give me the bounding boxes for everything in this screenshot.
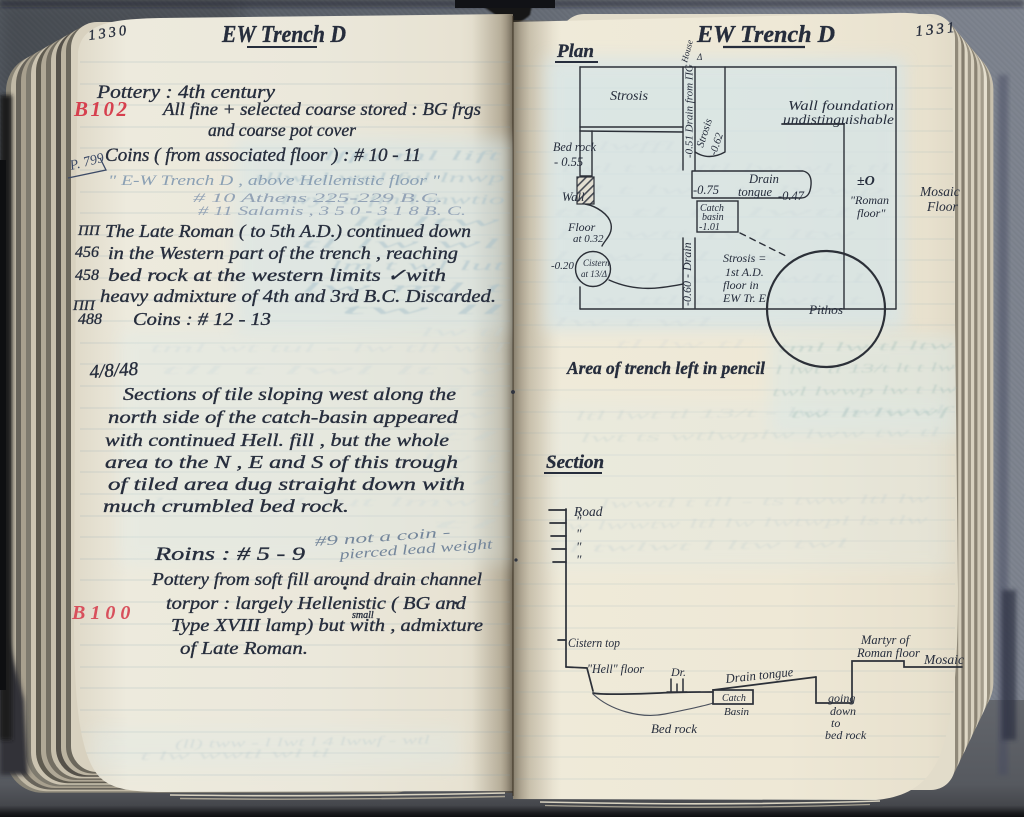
svg-text:floor": floor" (857, 206, 886, 220)
svg-text:488: 488 (78, 311, 102, 328)
svg-text:# 10 Athens 225-229 B.C.: # 10 Athens 225-229 B.C. (193, 191, 443, 205)
svg-text:Coins ( from associated floor: Coins ( from associated floor ) : # 10 -… (105, 146, 421, 166)
svg-text:-0.75: -0.75 (693, 183, 719, 197)
svg-text:tl lw tl: tl lw tl (615, 337, 747, 351)
svg-text:-1.01: -1.01 (699, 222, 720, 233)
svg-text:Coins : # 12 - 13: Coins : # 12 - 13 (133, 309, 271, 329)
svg-text:torpor : largely Hellenistic: torpor : largely Hellenistic ( BG and (166, 593, 466, 613)
svg-text:1st A.D.: 1st A.D. (725, 265, 764, 279)
svg-text:much crumbled bed rock.: much crumbled bed rock. (103, 496, 349, 516)
svg-text:of tiled area dug straight dow: of tiled area dug straight down with (108, 474, 465, 494)
svg-text:±O: ±O (857, 174, 875, 189)
svg-text:Cistern: Cistern (583, 258, 610, 268)
svg-text:Strosis: Strosis (610, 88, 648, 103)
svg-text:"Roman: "Roman (850, 193, 889, 207)
svg-text:B100: B100 (71, 602, 135, 624)
svg-text:Bed rock: Bed rock (553, 140, 596, 154)
svg-text:-0.51 Drain from ΠG: -0.51 Drain from ΠG (684, 64, 696, 158)
svg-text:The Late Roman ( to 5th A.D.): The Late Roman ( to 5th A.D.) continued … (105, 221, 471, 241)
svg-text:Floor: Floor (567, 220, 596, 234)
svg-text:EW Trench D: EW Trench D (221, 22, 346, 48)
svg-text:tongue: tongue (738, 185, 772, 199)
svg-text:ΠΠ: ΠΠ (77, 223, 101, 239)
svg-text:- 0.55: - 0.55 (554, 155, 583, 169)
svg-text:tlwffl: tlwffl (585, 139, 677, 153)
svg-text:wl t lw l tl lwwp: wl t lw l tl lwwp (555, 183, 885, 197)
svg-text:Bed rock: Bed rock (651, 721, 697, 736)
svg-text:458: 458 (75, 267, 99, 284)
svg-text:Catch: Catch (722, 693, 746, 704)
svg-text:Strosis =: Strosis = (723, 251, 766, 265)
svg-text:with continued Hell. fill , b: with continued Hell. fill , but the whol… (105, 430, 449, 450)
svg-text:-0.60 - Drain: -0.60 - Drain (680, 242, 694, 306)
svg-text:Pithos: Pithos (808, 302, 843, 317)
svg-text:lw tl: lw tl (420, 325, 507, 339)
svg-text:tml wt tul - lw tll wtl: tml wt tul - lw tll wtl (150, 341, 507, 355)
svg-text:Cistern top: Cistern top (568, 635, 620, 650)
svg-text:bed rock at the western limits: bed rock at the western limits ✓with (108, 265, 446, 285)
svg-text:of Late Roman.: of Late Roman. (180, 638, 308, 658)
svg-text:-0.47: -0.47 (778, 189, 805, 203)
svg-text:Mosaic: Mosaic (923, 653, 965, 668)
svg-text:Sections of tile sloping west: Sections of tile sloping west along the (123, 384, 456, 404)
svg-text:Area of trench left in pencil: Area of trench left in pencil (566, 358, 765, 378)
svg-text:4/8/48: 4/8/48 (89, 359, 139, 383)
svg-text:lw t wl: lw t wl (552, 315, 715, 329)
svg-text:and coarse pot cover: and coarse pot cover (208, 120, 356, 140)
svg-text:Dr.: Dr. (670, 665, 686, 679)
svg-text:All fine + selected coarse sto: All fine + selected coarse stored : BG f… (162, 99, 481, 119)
svg-text:at 13/Δ: at 13/Δ (581, 269, 607, 279)
svg-text:bed rock: bed rock (825, 728, 867, 742)
svg-text:floor in: floor in (723, 278, 759, 292)
svg-text:"Hell" floor: "Hell" floor (587, 662, 644, 676)
svg-text:EW Tr. E: EW Tr. E (722, 291, 767, 305)
svg-text:B102: B102 (73, 97, 130, 121)
svg-text:Mosaic: Mosaic (919, 184, 960, 199)
svg-text:at 0.32: at 0.32 (573, 233, 604, 245)
svg-text:small: small (352, 610, 374, 621)
svg-text:Wall: Wall (562, 190, 585, 204)
svg-text:# 11 Salamis , 3 5 0 - 3 1 8: # 11 Salamis , 3 5 0 - 3 1 8 B. C. (198, 204, 466, 218)
svg-text:north side of the catch-basin: north side of the catch-basin appeared (108, 407, 458, 427)
svg-text:lwl t wl ttl lw wl t tl: lwl t wl ttl lw wl t tl (560, 161, 892, 175)
svg-text:Floor: Floor (926, 199, 958, 214)
svg-text:Drain: Drain (748, 172, 779, 186)
svg-text:Martyr of: Martyr of (860, 633, 911, 647)
svg-text:area to the N , E and S of thi: area to the N , E and S of this trough (105, 452, 458, 472)
svg-text:going: going (828, 691, 855, 705)
svg-text:Roins : # 5 - 9: Roins : # 5 - 9 (154, 545, 305, 565)
svg-text:Section: Section (546, 452, 604, 473)
svg-text:heavy admixture of 4th and 3rd: heavy admixture of 4th and 3rd B.C. Disc… (100, 286, 496, 306)
svg-text:456: 456 (75, 244, 99, 261)
svg-text:EW Trench D: EW Trench D (696, 22, 835, 48)
svg-text:undistinguishable: undistinguishable (783, 112, 894, 127)
svg-text:-0.20: -0.20 (551, 260, 574, 272)
svg-text:": " (576, 552, 582, 567)
svg-text:Type XVIII lamp) but with , ad: Type XVIII lamp) but with , admixture (171, 615, 483, 635)
svg-text:" E-W Trench D , above Hellen: " E-W Trench D , above Hellenistic floor… (108, 173, 441, 189)
svg-text:in the Western part of the tre: in the Western part of the trench , reac… (108, 243, 458, 263)
svg-text:Pottery from soft fill around: Pottery from soft fill around drain chan… (151, 569, 482, 589)
svg-text:Wall foundation: Wall foundation (788, 98, 894, 113)
svg-text:Basin: Basin (724, 706, 750, 718)
svg-text:tll t lwl lt w: tll t lwl lt w (160, 363, 509, 377)
svg-text:Plan: Plan (556, 41, 594, 62)
svg-text:Δ: Δ (696, 52, 702, 62)
svg-text:Roman floor: Roman floor (856, 646, 920, 660)
